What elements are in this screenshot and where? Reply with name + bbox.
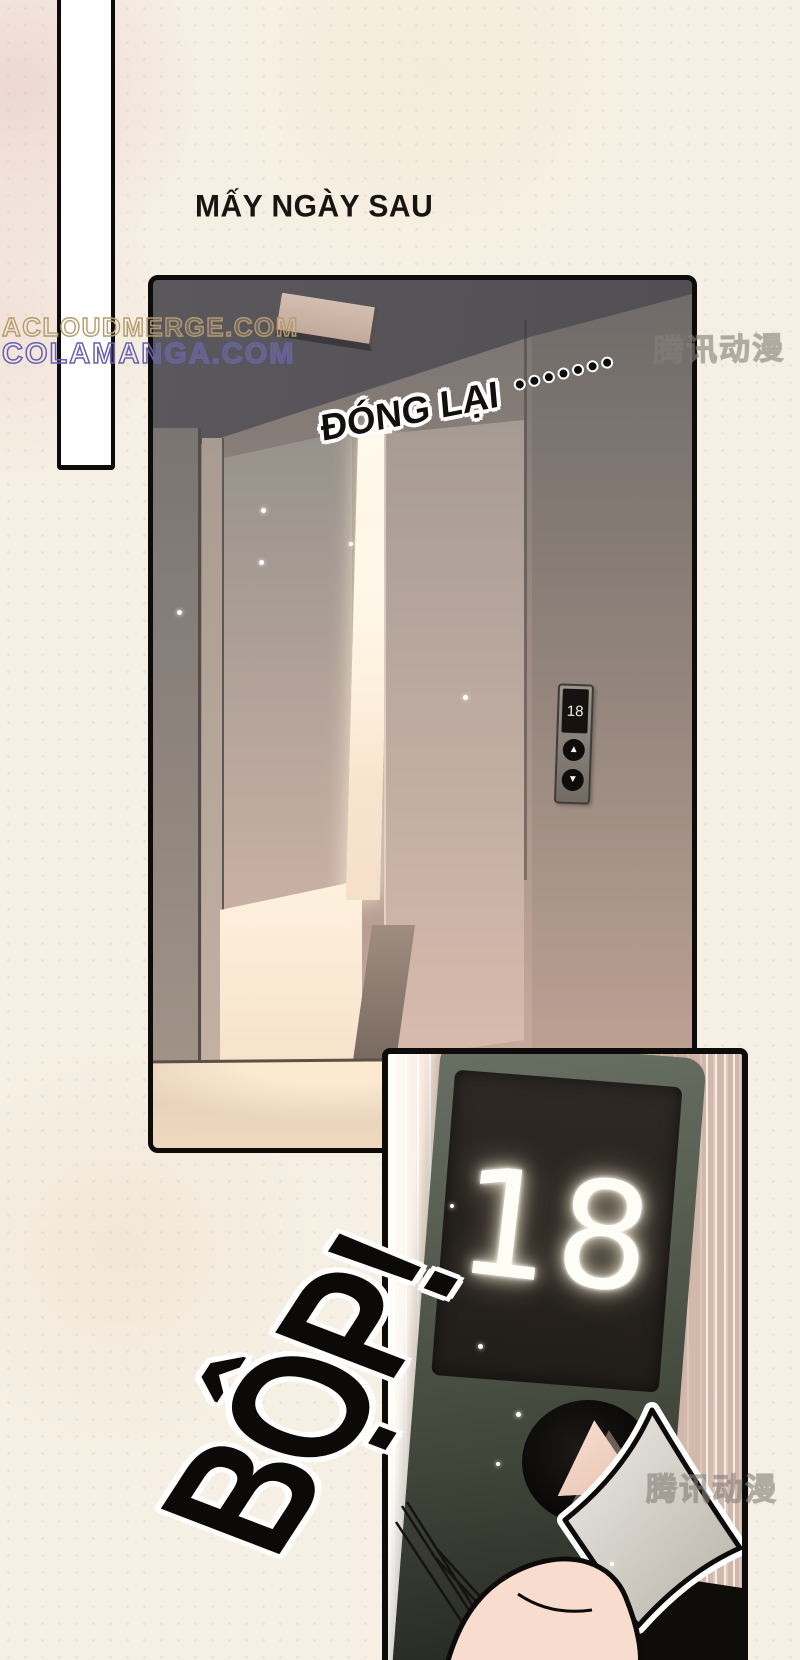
- sparkle: [610, 1562, 614, 1566]
- closing-dot: [602, 358, 612, 368]
- closing-dot: [558, 369, 568, 379]
- down-arrow-icon: ▼: [561, 769, 584, 792]
- sparkle: [516, 1412, 521, 1417]
- sparkle: [259, 560, 264, 565]
- sparkle: [261, 508, 266, 513]
- sparkle: [463, 695, 468, 700]
- elevator-door-left: [224, 430, 352, 930]
- closing-dot: [515, 380, 525, 390]
- door-frame-outer: [151, 428, 201, 1148]
- doorway-light: [220, 880, 362, 1070]
- closing-dot: [588, 361, 598, 371]
- closing-dot: [573, 365, 583, 375]
- sparkle: [496, 1462, 500, 1466]
- floor-indicator-display: 18: [561, 689, 589, 734]
- manga-page: MẤY NGÀY SAU ACLOUDMERGE.COM COLAMANGA.C…: [0, 0, 800, 1660]
- elevator-call-panel: 18 ▲ ▼: [554, 683, 594, 804]
- finger: [446, 1559, 640, 1660]
- empty-panel-strip: [57, 0, 115, 470]
- up-arrow-icon: ▲: [562, 739, 585, 762]
- scene-caption: MẤY NGÀY SAU: [195, 189, 433, 225]
- closing-dot: [544, 372, 554, 382]
- sparkle: [177, 610, 182, 615]
- hallway-right-wall: [523, 280, 692, 1148]
- panel-elevator-doors: 18 ▲ ▼ ĐÓNG LẠI: [148, 275, 697, 1153]
- closing-dot: [529, 376, 539, 386]
- sparkle: [349, 542, 353, 546]
